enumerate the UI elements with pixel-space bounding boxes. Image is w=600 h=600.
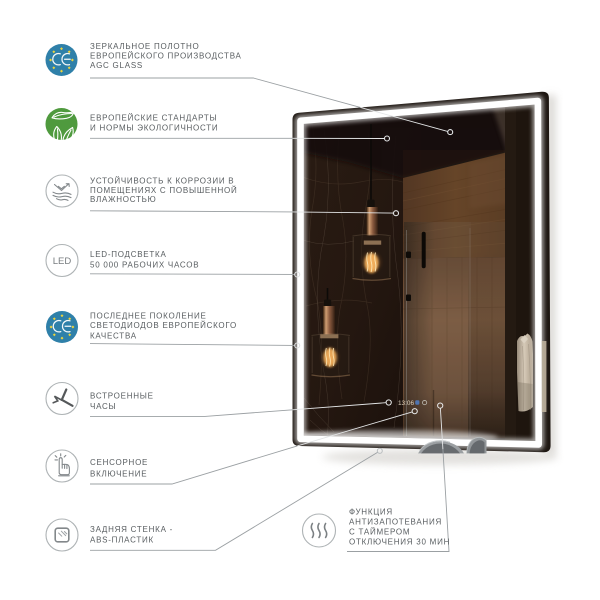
svg-text:СВЕТОДИОДОВ ЕВРОПЕЙСКОГО: СВЕТОДИОДОВ ЕВРОПЕЙСКОГО <box>90 321 237 330</box>
svg-text:LED-ПОДСВЕТКА: LED-ПОДСВЕТКА <box>90 250 167 259</box>
svg-text:ОТКЛЮЧЕНИЯ 30 МИН: ОТКЛЮЧЕНИЯ 30 МИН <box>349 538 450 547</box>
svg-text:13:06: 13:06 <box>398 400 414 407</box>
svg-text:ЗЕРКАЛЬНОЕ ПОЛОТНО: ЗЕРКАЛЬНОЕ ПОЛОТНО <box>90 42 199 51</box>
svg-text:LED: LED <box>53 256 72 267</box>
svg-text:ФУНКЦИЯ: ФУНКЦИЯ <box>349 508 393 517</box>
svg-text:50 000 РАБОЧИХ ЧАСОВ: 50 000 РАБОЧИХ ЧАСОВ <box>90 260 199 269</box>
svg-text:ЗАДНЯЯ СТЕНКА -: ЗАДНЯЯ СТЕНКА - <box>90 525 173 534</box>
svg-text:ПОСЛЕДНЕЕ ПОКОЛЕНИЕ: ПОСЛЕДНЕЕ ПОКОЛЕНИЕ <box>90 311 207 320</box>
svg-text:КАЧЕСТВА: КАЧЕСТВА <box>90 331 137 340</box>
svg-text:СЕНСОРНОЕ: СЕНСОРНОЕ <box>90 458 148 467</box>
svg-text:ВСТРОЕННЫЕ: ВСТРОЕННЫЕ <box>90 391 154 400</box>
svg-text:ПОМЕЩЕНИЯХ С ПОВЫШЕННОЙ: ПОМЕЩЕНИЯХ С ПОВЫШЕННОЙ <box>90 186 238 195</box>
svg-text:ABS-ПЛАСТИК: ABS-ПЛАСТИК <box>90 536 154 545</box>
svg-text:УСТОЙЧИВОСТЬ К КОРРОЗИИ В: УСТОЙЧИВОСТЬ К КОРРОЗИИ В <box>90 177 234 186</box>
svg-text:ЕВРОПЕЙСКИЕ СТАНДАРТЫ: ЕВРОПЕЙСКИЕ СТАНДАРТЫ <box>90 113 217 122</box>
svg-text:АНТИЗАПОТЕВАНИЯ: АНТИЗАПОТЕВАНИЯ <box>349 517 442 526</box>
svg-text:ВЛАЖНОСТЬЮ: ВЛАЖНОСТЬЮ <box>90 195 156 204</box>
svg-text:AGC GLASS: AGC GLASS <box>90 61 143 70</box>
svg-text:ЧАСЫ: ЧАСЫ <box>90 402 116 411</box>
svg-text:И НОРМЫ ЭКОЛОГИЧНОСТИ: И НОРМЫ ЭКОЛОГИЧНОСТИ <box>90 123 218 132</box>
svg-text:С ТАЙМЕРОМ: С ТАЙМЕРОМ <box>349 527 410 536</box>
svg-text:ВКЛЮЧЕНИЕ: ВКЛЮЧЕНИЕ <box>90 469 147 478</box>
svg-text:ЕВРОПЕЙСКОГО ПРОИЗВОДСТВА: ЕВРОПЕЙСКОГО ПРОИЗВОДСТВА <box>90 52 242 61</box>
